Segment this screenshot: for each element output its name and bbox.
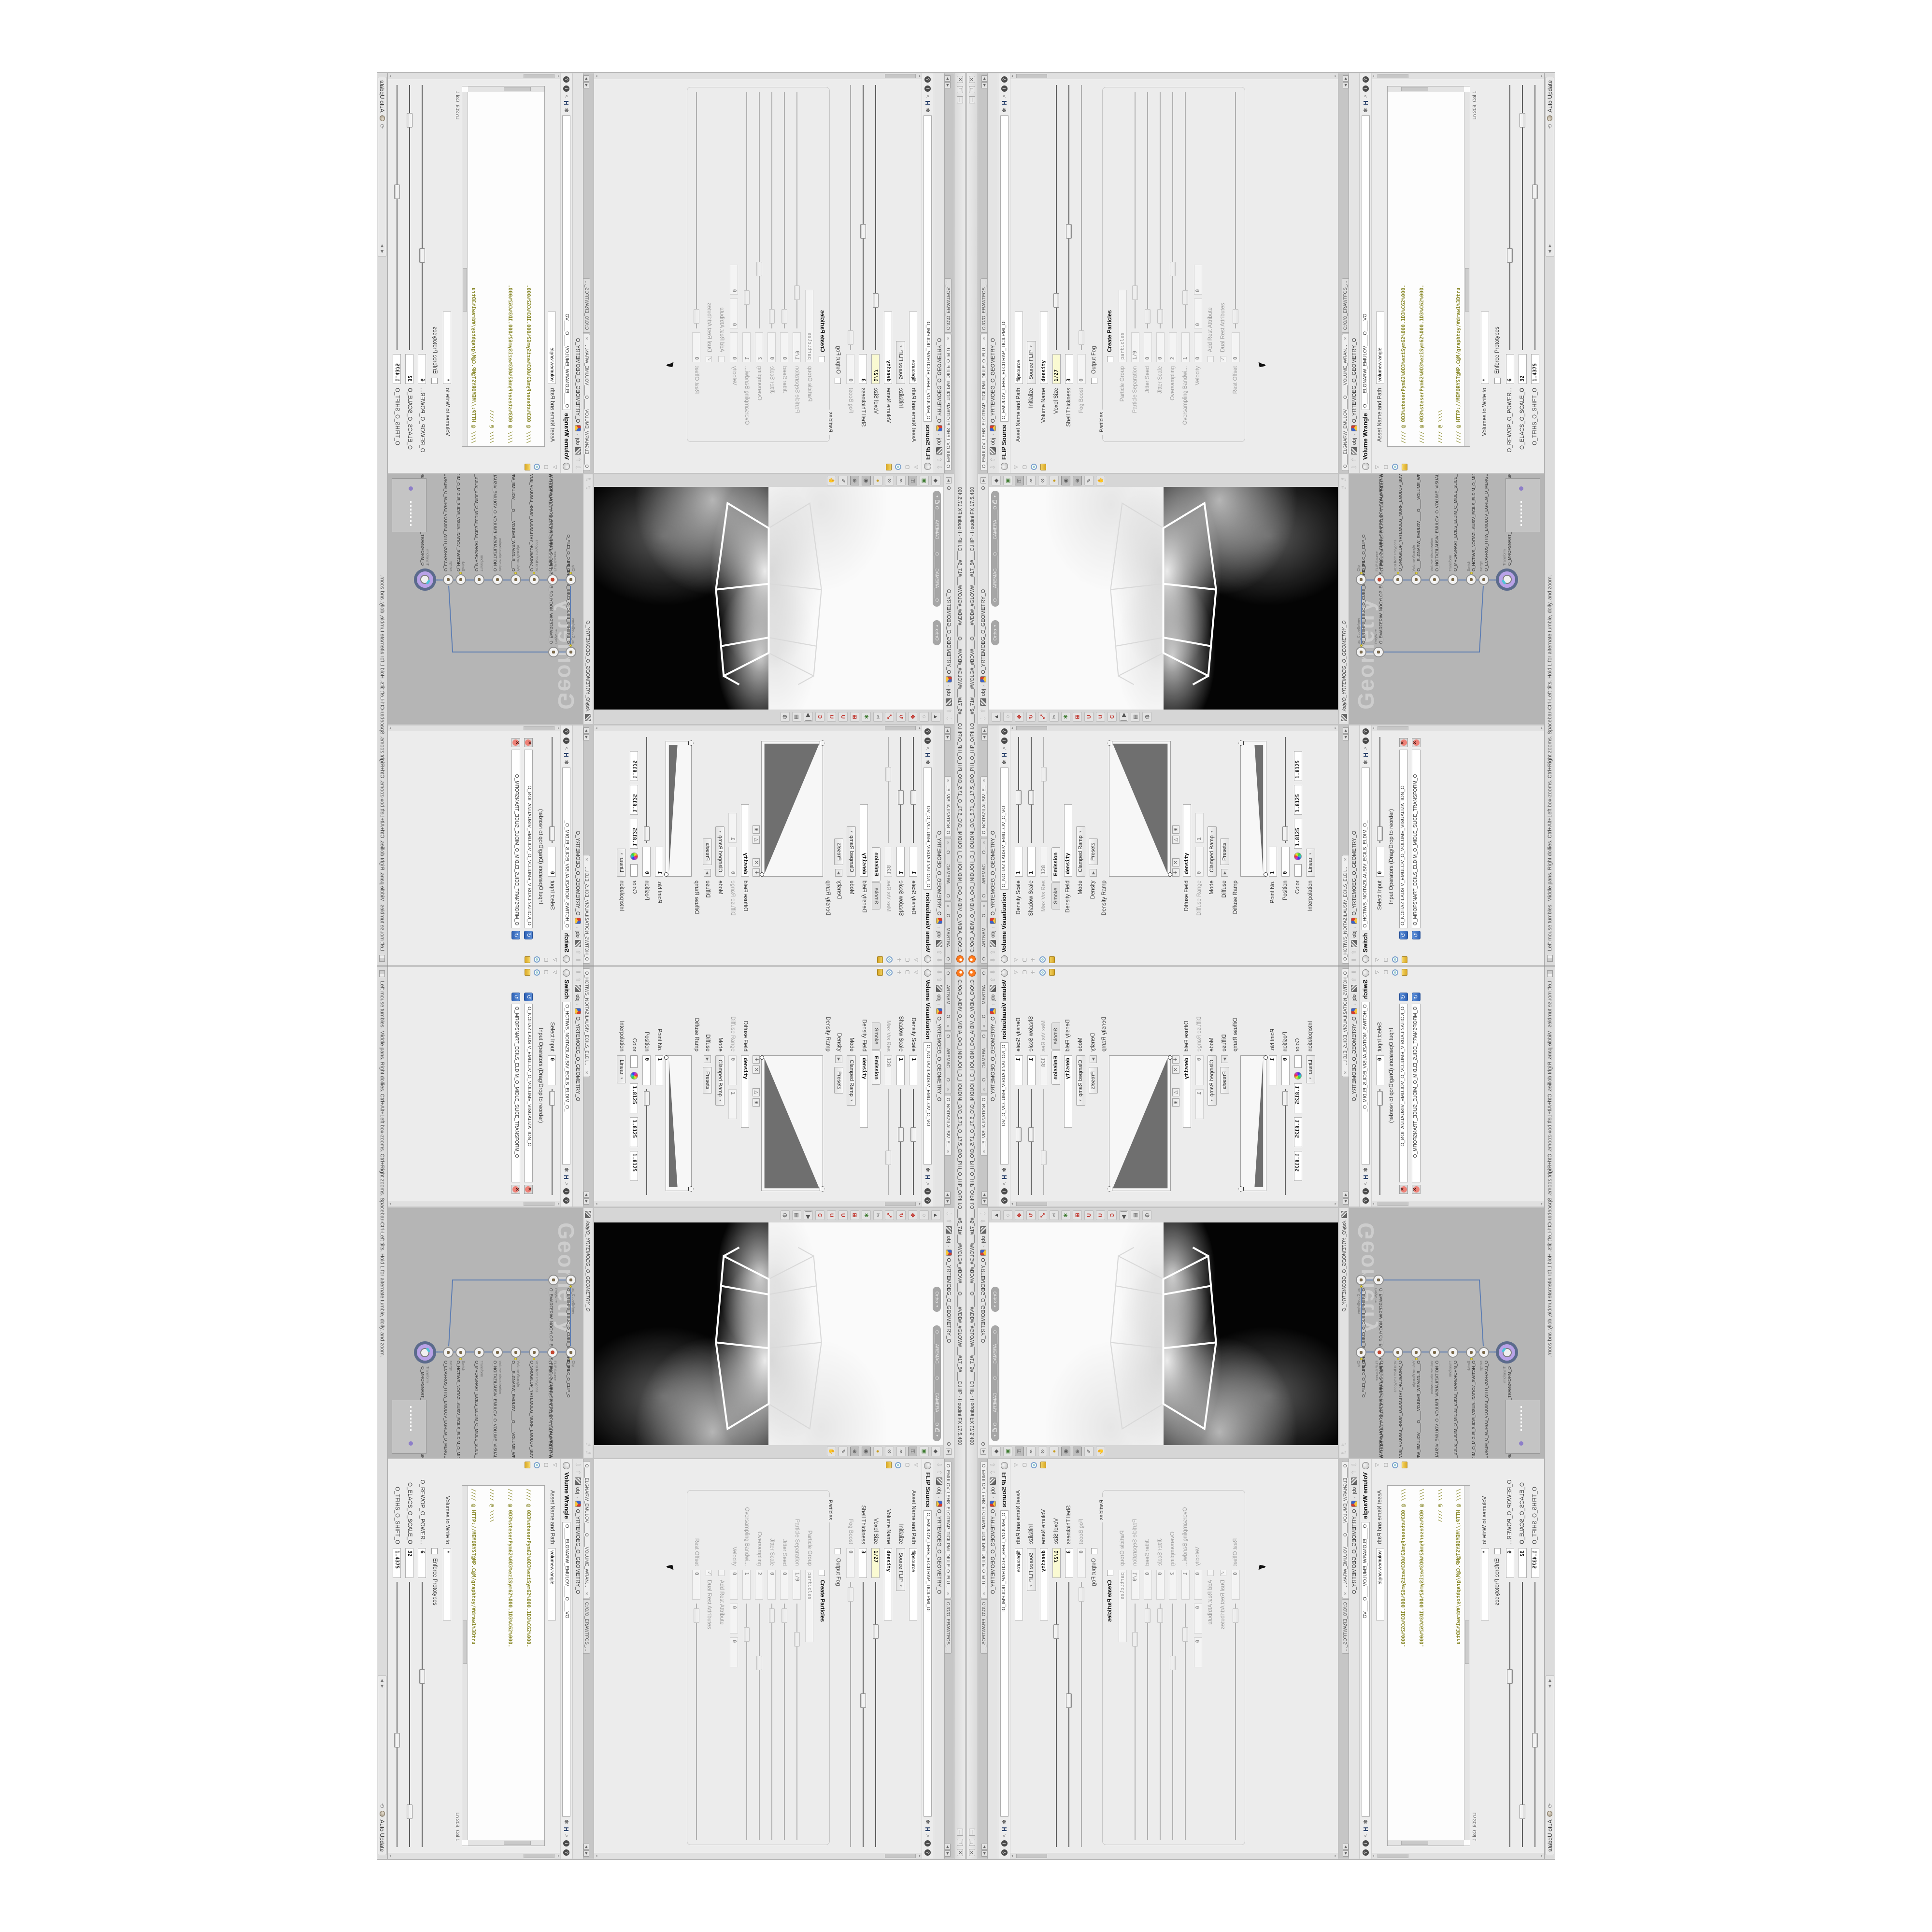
network-node[interactable]: MergeO_ECAFRUS_HTIW_EMULOV_EGREM_O_MERGE…: [443, 1347, 454, 1458]
maximize-button[interactable]: ❒: [957, 1839, 963, 1846]
tab-smoke[interactable]: Smoke: [872, 1023, 881, 1050]
shadow-scale-field[interactable]: 1: [897, 1055, 905, 1085]
projection-pill[interactable]: Ortho▾: [991, 620, 999, 645]
breadcrumb-node[interactable]: O_YRTEMOEG_O_GEOMETRY_O: [1351, 1509, 1357, 1594]
close-tab-icon[interactable]: ✕: [946, 1592, 950, 1595]
tab-software-path[interactable]: C:/O/O_ERAWTFOS_...: [945, 1599, 952, 1654]
pane-scrollbar[interactable]: ▲▼: [1372, 1201, 1544, 1207]
maximize-pane-icon[interactable]: ▢: [905, 465, 910, 469]
jitter-scale-slider[interactable]: [768, 1604, 776, 1840]
velocity-z-field[interactable]: 0: [1194, 1637, 1202, 1667]
scale-field[interactable]: 32: [406, 1548, 414, 1578]
show-display-icon[interactable]: ◉: [862, 476, 871, 485]
info-icon[interactable]: i: [1363, 1188, 1369, 1194]
gear-icon[interactable]: ✽: [564, 1819, 570, 1824]
minimize-button[interactable]: —: [969, 1829, 975, 1836]
info-icon[interactable]: i: [1001, 1840, 1008, 1847]
link-display-icon[interactable]: ∞: [1026, 1447, 1036, 1456]
maximize-pane-icon[interactable]: ▢: [1383, 957, 1389, 962]
message-log-icon[interactable]: [1547, 955, 1553, 962]
nav-back-icon[interactable]: ⇩: [936, 1462, 942, 1467]
shift-slider[interactable]: [1531, 1582, 1539, 1847]
tab-scroll-left-icon[interactable]: ◀: [583, 734, 589, 740]
rest-offset-field[interactable]: 0: [693, 332, 701, 362]
diffuse-range-max-field[interactable]: 1: [729, 813, 737, 843]
view-layout-icon[interactable]: ◆: [992, 1447, 1001, 1456]
power-field[interactable]: 6: [418, 354, 426, 384]
diffuse-ramp-editor[interactable]: [666, 741, 692, 877]
maximize-button[interactable]: ❒: [969, 86, 975, 93]
info-icon[interactable]: i: [564, 85, 570, 92]
oversampling-bandwidth-field[interactable]: 1: [1181, 332, 1190, 362]
pane-scrollbar[interactable]: ▲▼: [594, 1853, 922, 1859]
layers-icon[interactable]: [1040, 1462, 1046, 1468]
select-tool-icon[interactable]: ▲: [931, 1210, 940, 1220]
snap-point-magnet-icon[interactable]: U: [1096, 1210, 1105, 1220]
help-icon[interactable]: ?: [925, 76, 931, 83]
node-flag-icon[interactable]: [1397, 572, 1399, 574]
tab-switch[interactable]: O_HCTIWS_NOITAZILAUSIV_ECILS_ELDIM_O_MID…: [1342, 855, 1349, 964]
nav-forward-icon[interactable]: ⇧: [980, 1219, 986, 1224]
density-mode-dropdown[interactable]: Clamped Ramp▾: [847, 1055, 856, 1106]
oversampling-field[interactable]: 2: [755, 1570, 764, 1600]
search-icon[interactable]: ⌕: [1001, 747, 1008, 750]
pane-menu-icon[interactable]: ▶: [946, 477, 952, 483]
ramp-flip-icon[interactable]: △: [1172, 1088, 1179, 1096]
input-operator-item[interactable]: O_MROFSNART_ECILS_ELDIM_O_MIDLE_SLICE_TR…: [1412, 750, 1421, 928]
tab-mantra[interactable]: O____ARTNAM____O...✕: [945, 901, 952, 964]
network-node[interactable]: Volume VisualizationO_NOITAZILAUSIV_EMUL…: [1429, 1347, 1440, 1458]
network-node[interactable]: ClipO_PILC_O_CLIP_O: [1356, 1347, 1366, 1398]
power-slider[interactable]: [418, 85, 426, 350]
breadcrumb-node[interactable]: O_YRTEMOEG_O_GEOMETRY_O: [575, 1017, 581, 1102]
network-node[interactable]: VDB from PolygonsO_SNOGILOP_YRTEMOEG_MOR…: [529, 1347, 540, 1458]
search-icon[interactable]: ⌕: [1363, 1834, 1369, 1837]
houdini-help-icon[interactable]: H: [1362, 753, 1369, 757]
code-vertical-scrollbar[interactable]: [468, 1840, 544, 1846]
breadcrumb-root[interactable]: obj: [1351, 931, 1357, 938]
tab-camera[interactable]: O____AREMAC____O...✕: [945, 1032, 952, 1094]
shift-field[interactable]: 1.4375: [1531, 1548, 1539, 1578]
tab-mantra[interactable]: O____ARTNAM____O...✕: [980, 901, 987, 964]
network-minimap[interactable]: [392, 1400, 426, 1454]
diffuse-field-field[interactable]: density: [1183, 804, 1191, 877]
breadcrumb-node[interactable]: O_YRTEMOEG_O_GEOMETRY_O: [937, 831, 942, 916]
snap-prim-magnet-icon[interactable]: U: [838, 1210, 848, 1220]
pane-scrollbar[interactable]: ▲▼: [388, 725, 560, 731]
ramp-point-handle[interactable]: [1264, 872, 1268, 877]
maximize-pane-icon[interactable]: ▢: [1383, 970, 1389, 974]
pin-pane-icon[interactable]: ▽: [913, 970, 919, 974]
breadcrumb-node[interactable]: O_YRTEMOEG_O_GEOMETRY_O: [990, 1509, 996, 1594]
input-operator-item[interactable]: O_MROFSNART_ECILS_ELDIM_O_MIDLE_SLICE_TR…: [511, 750, 520, 928]
update-mode-right-icon[interactable]: ▶: [1548, 244, 1552, 247]
lasso-tool-icon[interactable]: ◌: [1003, 712, 1012, 722]
jitter-scale-field[interactable]: 0: [1156, 332, 1165, 362]
move-input-up-button[interactable]: ↺: [524, 931, 533, 939]
diffuse-range-min-field[interactable]: 0: [1195, 1055, 1204, 1085]
breadcrumb-root[interactable]: obj: [937, 994, 942, 1002]
delete-input-button[interactable]: [524, 1185, 533, 1194]
search-icon[interactable]: ⌕: [564, 747, 570, 750]
update-mode-left-icon[interactable]: ◀: [380, 250, 384, 253]
update-mode-left-icon[interactable]: ◀: [1548, 1679, 1552, 1682]
point-no-field[interactable]: 1: [1269, 847, 1277, 877]
node-name-field[interactable]: O_EMULOV_LEHS_ELCITRAP_TICILPMI_DI: [924, 1510, 932, 1817]
add-rest-checkbox[interactable]: [719, 356, 725, 362]
tab-scroll-right-icon[interactable]: ▶: [583, 727, 589, 734]
tab-software-path[interactable]: C:/O/O_ERAWTFOS_...: [980, 1599, 987, 1654]
color-b-field[interactable]: 1.8125: [1294, 1151, 1302, 1181]
help-icon[interactable]: ?: [564, 1849, 570, 1856]
power-slider[interactable]: [418, 1582, 426, 1847]
jitter-seed-field[interactable]: 0: [781, 332, 789, 362]
shift-slider[interactable]: [393, 85, 401, 350]
density-scale-field[interactable]: 1: [909, 847, 918, 877]
network-node[interactable]: FLIP SourceO_EMULOV_LEHS_ELCITRAP_TICILP…: [547, 1347, 558, 1458]
link-target-icon[interactable]: [1039, 957, 1046, 963]
snap-prim-magnet-icon[interactable]: U: [838, 712, 848, 722]
pin-pane-icon[interactable]: ▽: [1013, 958, 1019, 962]
rest-offset-slider[interactable]: [693, 92, 700, 328]
velocity-y-field[interactable]: 0: [1194, 1604, 1202, 1634]
breadcrumb-node[interactable]: O_YRTEMOEG_O_GEOMETRY_O: [990, 338, 996, 423]
maximize-pane-icon[interactable]: ▢: [543, 970, 549, 974]
asset-name-field[interactable]: flipsource: [1015, 312, 1023, 384]
network-node[interactable]: Volume VisualizationO_NOITAZILAUSIV_EMUL…: [492, 1347, 503, 1458]
pane-scrollbar[interactable]: ▲▼: [594, 73, 922, 79]
tab-camera[interactable]: O____AREMAC____O...✕: [980, 1032, 987, 1094]
tab-switch[interactable]: O_HCTIWS_NOITAZILAUSIV_ECILS_ELDIM_O_MID…: [1342, 968, 1349, 1077]
ramp-menu-icon[interactable]: ▶: [1221, 869, 1228, 877]
pin-pane-icon[interactable]: ▽: [1013, 970, 1019, 974]
asset-name-field[interactable]: flipsource: [909, 312, 918, 384]
view-layout-icon[interactable]: ◆: [931, 1447, 940, 1456]
view-layout-icon[interactable]: ◆: [931, 476, 940, 485]
nav-forward-icon[interactable]: ⇧: [936, 457, 942, 462]
search-icon[interactable]: ⌕: [564, 1182, 570, 1185]
shell-thickness-field[interactable]: 3: [859, 354, 867, 384]
fog-boost-slider[interactable]: [847, 1582, 854, 1847]
density-presets-button[interactable]: Presets: [1089, 1067, 1098, 1094]
velocity-x-field[interactable]: 0: [1194, 1570, 1202, 1600]
ramp-point-handle[interactable]: [1168, 872, 1172, 877]
network-node[interactable]: Volume WrangleO___ELGNARW_EMULOV____O___…: [1411, 474, 1421, 585]
interpolation-dropdown[interactable]: Linear▾: [617, 1055, 626, 1083]
oversampling-field[interactable]: 2: [1169, 1570, 1177, 1600]
tab-flip-source[interactable]: O_EMULOV_LEHS_ELCITRAP_TICILPMI_DIULF_O_…: [945, 334, 952, 471]
search-icon[interactable]: ⌕: [925, 747, 931, 750]
disc-tool-icon[interactable]: ◍: [1142, 1210, 1151, 1220]
maximize-pane-icon[interactable]: ▢: [1022, 465, 1027, 469]
layers-icon[interactable]: [1402, 1462, 1407, 1468]
close-tab-icon[interactable]: ✕: [946, 1088, 950, 1091]
grab-view-icon[interactable]: ✋: [827, 476, 836, 485]
network-canvas[interactable]: Geometry: [1349, 474, 1544, 724]
power-slider[interactable]: [1506, 85, 1514, 350]
code-horizontal-scrollbar[interactable]: [462, 92, 468, 446]
info-icon[interactable]: i: [925, 1840, 931, 1847]
jitter-seed-slider[interactable]: [1144, 92, 1151, 328]
nav-down-icon[interactable]: ⇩: [585, 1449, 591, 1455]
breadcrumb-node[interactable]: O_YRTEMOEG_O_GEOMETRY_O: [1351, 338, 1357, 423]
pane-scrollbar[interactable]: ▲▼: [1010, 1201, 1338, 1207]
gear-icon[interactable]: ✽: [1001, 108, 1008, 113]
density-presets-button[interactable]: Presets: [1089, 838, 1098, 865]
max-vis-res-field[interactable]: 128: [1040, 1055, 1048, 1085]
network-path[interactable]: /obj/O_YRTEMOEG_O_GEOMETRY_O: [585, 621, 591, 711]
density-ramp-editor[interactable]: [1109, 741, 1171, 877]
power-field[interactable]: 6: [418, 1548, 426, 1578]
tab-scroll-right-icon[interactable]: ▶: [981, 75, 987, 82]
ramp-expand-icon[interactable]: ⊞: [1172, 825, 1179, 834]
close-tab-icon[interactable]: ✕: [982, 1592, 986, 1595]
split-pane-icon[interactable]: ✛: [896, 970, 901, 974]
shift-field[interactable]: 1.4375: [393, 354, 401, 384]
node-flag-icon[interactable]: [1397, 1358, 1399, 1360]
network-node[interactable]: SwitchO_HCTIWS_NOITAZILAUSIV_ECILS_ELDIM…: [1466, 1347, 1477, 1458]
move-input-up-button[interactable]: ↺: [1399, 993, 1408, 1001]
shadow-scale-slider[interactable]: [897, 737, 905, 843]
layers-icon[interactable]: [1402, 464, 1407, 470]
tab-emission[interactable]: Emission: [872, 1051, 881, 1085]
tab-smoke[interactable]: Smoke: [1051, 882, 1060, 909]
color-b-field[interactable]: 1.8125: [1294, 751, 1302, 781]
annotate-icon[interactable]: ✎: [838, 1447, 848, 1456]
network-node[interactable]: MergeO_ECAFRUS_HTIW_EMULOV_EGREM_O_MERGE…: [1478, 1347, 1489, 1458]
network-node[interactable]: MergeO_ECAFRUS_HTIW_EMULOV_EGREM_O_MERGE…: [1478, 474, 1489, 585]
asset-name-field[interactable]: volumewrangle: [1376, 312, 1384, 384]
maximize-pane-icon[interactable]: ▢: [1022, 970, 1027, 974]
help-icon[interactable]: ?: [1363, 76, 1369, 83]
tab-scroll-left-icon[interactable]: ◀: [583, 1844, 589, 1850]
gear-icon[interactable]: ✽: [1001, 760, 1008, 765]
network-node[interactable]: ClipO_PILC_O_CLIP_O: [566, 534, 576, 585]
grab-view-icon[interactable]: ✋: [1096, 476, 1105, 485]
nav-down-icon[interactable]: ⇩: [585, 477, 591, 483]
oversampling-bandwidth-slider[interactable]: [1181, 1604, 1189, 1840]
exclude-icon[interactable]: ⊘: [885, 476, 894, 485]
network-node[interactable]: Volume WrangleO___ELGNARW_EMULOV____O___…: [1411, 1347, 1421, 1458]
diffuse-field-field[interactable]: density: [741, 1055, 750, 1128]
show-display-icon[interactable]: ◉: [1061, 476, 1070, 485]
tab-smoke[interactable]: Smoke: [1051, 1023, 1060, 1050]
layers-icon[interactable]: [525, 1462, 530, 1468]
breadcrumb-root[interactable]: obj: [980, 1236, 986, 1243]
network-node[interactable]: FLIP SourceO_EMULOV_LEHS_ELCITRAP_TICILP…: [1374, 1347, 1385, 1458]
snapshot-icon[interactable]: ▣: [920, 1447, 929, 1456]
disc-tool-icon[interactable]: ◍: [781, 1210, 790, 1220]
lasso-tool-icon[interactable]: ◌: [1003, 1210, 1012, 1220]
snap-prim-magnet-icon[interactable]: U: [1084, 712, 1094, 722]
update-mode-label[interactable]: Auto Update: [379, 80, 386, 113]
render-view-icon[interactable]: ▤: [792, 712, 801, 722]
density-scale-slider[interactable]: [1015, 1089, 1023, 1195]
tab-flip-source[interactable]: O_EMULOV_LEHS_ELCITRAP_TICILPMI_DIULF_O_…: [980, 334, 987, 471]
nav-forward-icon[interactable]: ⇧: [575, 457, 581, 462]
oversampling-slider[interactable]: [755, 1604, 763, 1840]
message-log-icon[interactable]: [1547, 970, 1553, 977]
axis-align-icon[interactable]: ✱: [862, 1210, 871, 1220]
density-field-field[interactable]: density: [860, 804, 868, 877]
position-slider[interactable]: [643, 1089, 651, 1195]
scale-tool-icon[interactable]: ⤢: [885, 1210, 894, 1220]
rotate-tool-icon[interactable]: ↻: [896, 1210, 906, 1220]
breadcrumb-root[interactable]: obj: [990, 931, 996, 938]
snap-grid-magnet-icon[interactable]: ⊞: [1073, 1210, 1082, 1220]
lock-camera-icon[interactable]: ⚿: [1015, 1447, 1024, 1456]
scale-tool-icon[interactable]: ⤢: [1038, 1210, 1047, 1220]
node-flag-icon[interactable]: [569, 1285, 572, 1288]
tab-scroll-left-icon[interactable]: ◀: [981, 734, 987, 740]
vex-code-editor[interactable]: //// @ 0D3%steserPym62%0D3%eziSym62%000.…: [462, 1485, 545, 1846]
diffuse-mode-dropdown[interactable]: Clamped Ramp▾: [1207, 1055, 1217, 1106]
rest-offset-field[interactable]: 0: [1232, 332, 1240, 362]
close-tab-icon[interactable]: ✕: [946, 779, 950, 782]
snap-grid-magnet-icon[interactable]: ⊞: [850, 712, 859, 722]
link-target-icon[interactable]: [886, 957, 893, 963]
close-tab-icon[interactable]: ✕: [584, 1592, 589, 1595]
exclude-icon[interactable]: ⊘: [1038, 476, 1047, 485]
ramp-flip-icon[interactable]: △: [753, 1088, 760, 1096]
update-mode-right-icon[interactable]: ▶: [380, 244, 384, 247]
fog-boost-field[interactable]: 0: [1078, 1548, 1086, 1578]
gear-icon[interactable]: ✽: [564, 108, 570, 113]
vex-code-editor[interactable]: //// @ 0D3%steserPym62%0D3%eziSym62%000.…: [462, 86, 545, 447]
pane-menu-icon[interactable]: ▶: [980, 1449, 986, 1455]
asset-name-field[interactable]: volumewrangle: [548, 1548, 556, 1620]
maximize-pane-icon[interactable]: ▢: [905, 957, 910, 962]
show-display-icon[interactable]: ◉: [1061, 1447, 1070, 1456]
network-node[interactable]: ClipO_PILC_O_CLIP_O: [566, 1347, 576, 1398]
pin-pane-icon[interactable]: ▽: [1375, 958, 1380, 962]
maximize-pane-icon[interactable]: ▢: [905, 1463, 910, 1467]
oversampling-slider[interactable]: [1169, 1604, 1177, 1840]
nav-back-icon[interactable]: ⇩: [1351, 969, 1357, 975]
camera-pill[interactable]: O____AREMAC_____O_____CAMERA____O▾: [991, 1325, 999, 1441]
ramp-flip-icon[interactable]: △: [753, 836, 760, 844]
density-scale-field[interactable]: 1: [1015, 1055, 1023, 1085]
nav-forward-icon[interactable]: ⇧: [990, 457, 996, 462]
delete-ramp-point-icon[interactable]: ✕: [753, 858, 760, 867]
diffuse-range-min-field[interactable]: 0: [729, 847, 737, 877]
pin-pane-icon[interactable]: ▽: [913, 1463, 919, 1467]
point-no-field[interactable]: 1: [1269, 1055, 1277, 1085]
search-icon[interactable]: ⌕: [564, 1834, 570, 1837]
gear-icon[interactable]: ✽: [925, 108, 931, 113]
select-tool-icon[interactable]: ▲: [931, 712, 940, 722]
help-icon[interactable]: ?: [1363, 1197, 1369, 1204]
node-name-field[interactable]: O____ELGNARW_EMULOV____O____VO: [1362, 1522, 1370, 1817]
oversampling-bandwidth-slider[interactable]: [1181, 92, 1189, 328]
nav-back-icon[interactable]: ⇩: [936, 969, 942, 975]
rest-offset-slider[interactable]: [693, 1604, 700, 1840]
pin-pane-icon[interactable]: ▽: [552, 970, 557, 974]
point-no-field[interactable]: 1: [655, 1055, 664, 1085]
link-display-icon[interactable]: ∞: [896, 1447, 906, 1456]
oversampling-slider[interactable]: [1169, 92, 1177, 328]
jitter-scale-field[interactable]: 0: [1156, 1570, 1165, 1600]
camera-pill[interactable]: O____AREMAC_____O_____CAMERA____O▾: [933, 1325, 941, 1441]
voxel-size-slider[interactable]: [1052, 1582, 1060, 1847]
color-wheel-icon[interactable]: [1294, 852, 1302, 860]
update-mode-left-icon[interactable]: ◀: [1548, 250, 1552, 253]
color-r-field[interactable]: 1.8125: [630, 819, 639, 849]
network-node[interactable]: VDB from PolygonsO_SNOGILOP_YRTEMOEG_MOR…: [1392, 1347, 1403, 1458]
code-horizontal-scrollbar[interactable]: [462, 1486, 468, 1840]
nav-up-icon[interactable]: ⇧: [1341, 1441, 1347, 1447]
houdini-help-icon[interactable]: H: [563, 1175, 570, 1179]
network-node[interactable]: VDB from PolygonsO_SNOGILOP_YRTEMOEG_MOR…: [1392, 474, 1403, 585]
shell-thickness-field[interactable]: 3: [859, 1548, 867, 1578]
oversampling-bandwidth-slider[interactable]: [743, 1604, 751, 1840]
gear-icon[interactable]: ✽: [564, 1167, 570, 1172]
close-tab-icon[interactable]: ✕: [584, 337, 589, 340]
view-layout-icon[interactable]: ◆: [992, 476, 1001, 485]
scale-tool-icon[interactable]: ⤢: [885, 712, 894, 722]
breadcrumb-root[interactable]: obj: [990, 994, 996, 1002]
close-tab-icon[interactable]: ✕: [584, 1071, 589, 1074]
nav-forward-icon[interactable]: ⇧: [1351, 457, 1357, 462]
velocity-y-field[interactable]: 0: [730, 298, 739, 328]
nav-down-icon[interactable]: ⇩: [1341, 477, 1347, 483]
node-flag-icon[interactable]: [569, 1358, 572, 1360]
annotate-icon[interactable]: ✎: [1084, 1447, 1094, 1456]
gear-icon[interactable]: ✽: [1363, 1167, 1369, 1172]
code-horizontal-scrollbar[interactable]: [1464, 92, 1470, 446]
code-horizontal-scrollbar[interactable]: [1464, 1486, 1470, 1840]
jitter-seed-slider[interactable]: [781, 1604, 788, 1840]
info-icon[interactable]: i: [1363, 85, 1369, 92]
tab-scroll-right-icon[interactable]: ▶: [583, 1198, 589, 1205]
houdini-help-icon[interactable]: H: [924, 1175, 932, 1179]
interpolation-dropdown[interactable]: Linear▾: [1306, 849, 1315, 877]
node-name-field[interactable]: O_EMULOV_LEHS_ELCITRAP_TICILPMI_DI: [1000, 1510, 1009, 1817]
nav-back-icon[interactable]: ⇩: [575, 969, 581, 975]
pin-pane-icon[interactable]: ▽: [552, 958, 557, 962]
delete-ramp-point-icon[interactable]: ✕: [1172, 1065, 1179, 1074]
node-name-field[interactable]: O_HCTIWS_NOITAZILAUSIV_ECILS_ELDIM_O_: [563, 767, 571, 930]
breadcrumb-root[interactable]: obj: [575, 438, 581, 445]
grab-view-icon[interactable]: ✋: [827, 1447, 836, 1456]
nav-forward-icon[interactable]: ⇧: [575, 950, 581, 955]
nav-back-icon[interactable]: ⇩: [990, 1462, 996, 1467]
breadcrumb-root[interactable]: obj: [946, 1236, 952, 1243]
max-vis-res-field[interactable]: 128: [1040, 847, 1048, 877]
voxel-size-slider[interactable]: [1052, 85, 1060, 350]
ramp-menu-icon[interactable]: ▶: [1090, 1055, 1097, 1063]
close-tab-icon[interactable]: ✕: [982, 1150, 986, 1153]
rest-offset-slider[interactable]: [1232, 92, 1239, 328]
close-tab-icon[interactable]: ✕: [946, 841, 950, 844]
lock-camera-icon[interactable]: ⚿: [908, 1447, 917, 1456]
update-mode-label[interactable]: Auto Update: [379, 1819, 386, 1852]
pin-pane-icon[interactable]: ▽: [1375, 465, 1380, 469]
nav-forward-icon[interactable]: ⇧: [575, 1470, 581, 1475]
code-vertical-scrollbar[interactable]: [468, 86, 544, 92]
nav-forward-icon[interactable]: ⇧: [990, 1470, 996, 1475]
world-axis-icon[interactable]: ⊕: [850, 476, 859, 485]
network-node[interactable]: Volume VisualizationO_NOITAZILAUSIV_EMUL…: [492, 474, 503, 585]
layers-icon[interactable]: [1402, 969, 1407, 976]
message-log-icon[interactable]: [380, 970, 385, 977]
fog-boost-field[interactable]: 0: [1078, 354, 1086, 384]
breadcrumb-root[interactable]: obj: [1351, 994, 1357, 1002]
breadcrumb-root[interactable]: obj: [937, 931, 942, 938]
max-vis-res-slider[interactable]: [1040, 737, 1048, 843]
close-tab-icon[interactable]: ✕: [1343, 1071, 1348, 1074]
gear-icon[interactable]: ✽: [925, 1819, 931, 1824]
